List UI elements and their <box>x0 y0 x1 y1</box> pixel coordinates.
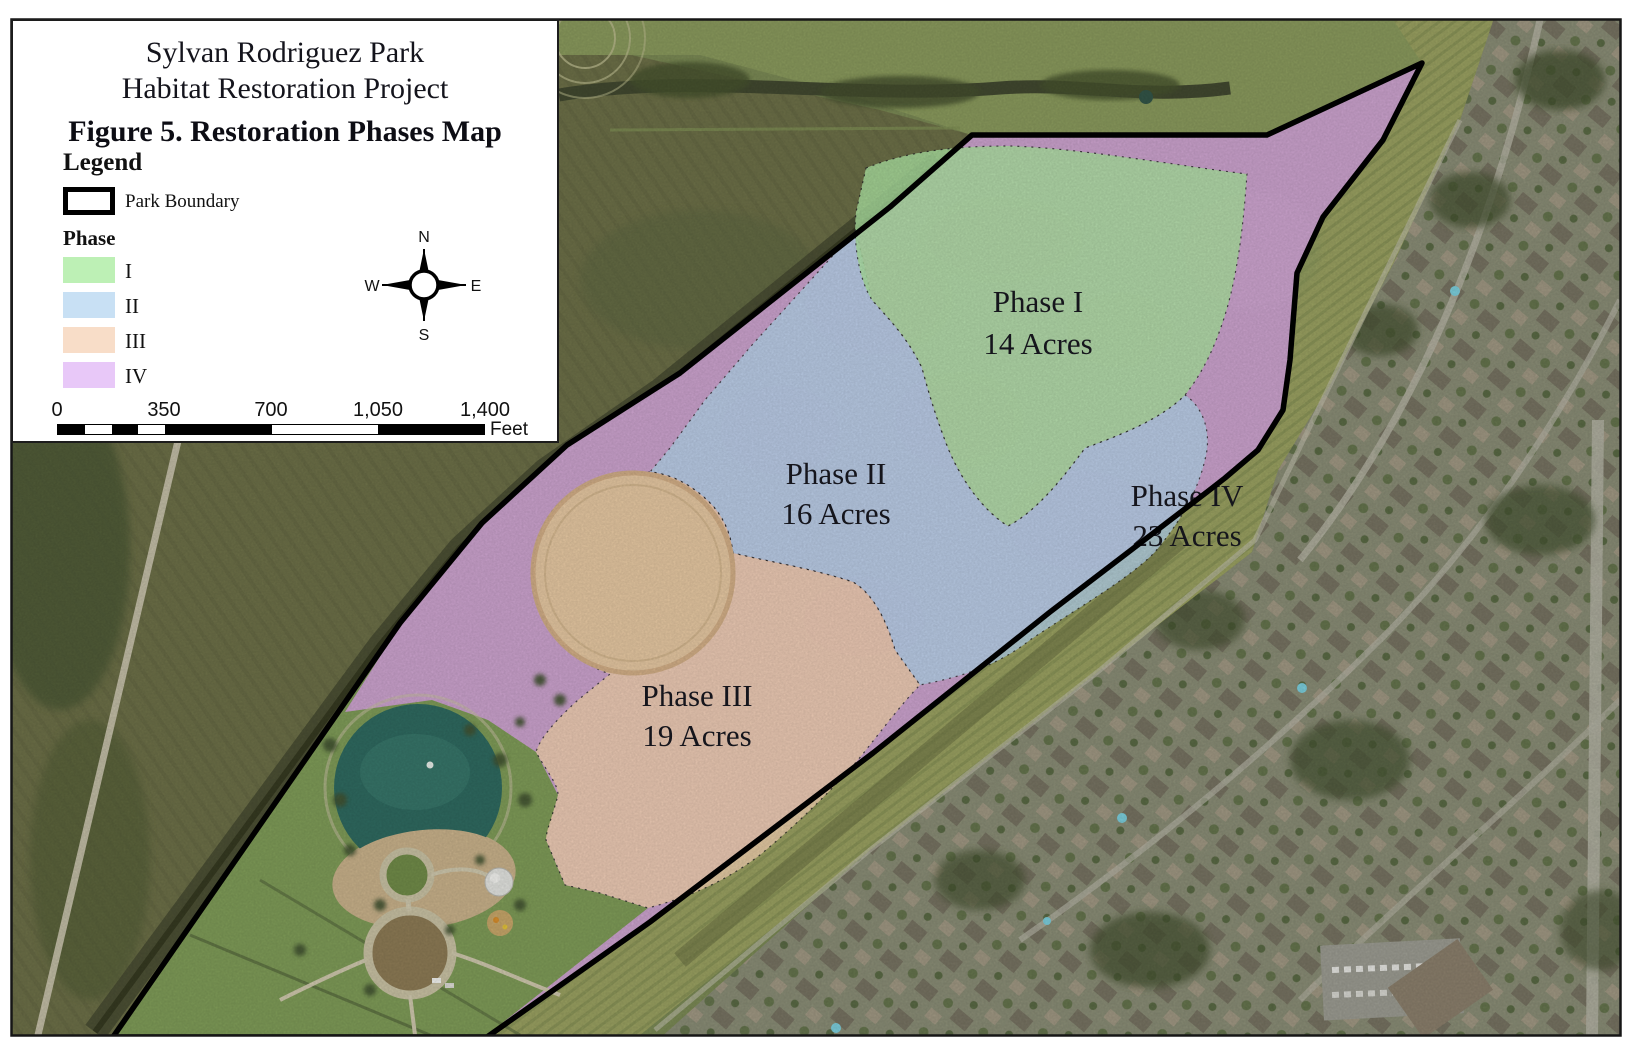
compass-rose: N S W E <box>359 224 489 346</box>
figure-title: Figure 5. Restoration Phases Map <box>13 115 557 149</box>
scale-tick-350: 350 <box>147 399 180 422</box>
phase-2-acres: 16 Acres <box>781 496 890 531</box>
phase-1-acres: 14 Acres <box>983 326 1092 361</box>
west-spike <box>382 280 410 290</box>
phase-2-label: Phase II <box>786 456 887 491</box>
phase-3-label: Phase III <box>641 678 752 713</box>
park-boundary-swatch <box>63 187 115 215</box>
legend-heading: Legend <box>63 149 142 177</box>
park-boundary-label: Park Boundary <box>125 191 240 213</box>
compass-east-label: E <box>471 278 482 295</box>
map-title-line1: Sylvan Rodriguez Park <box>13 37 557 69</box>
phase-4-numeral: IV <box>125 364 147 389</box>
phase-1-swatch <box>63 257 115 283</box>
phase-1-label: Phase I <box>993 284 1083 319</box>
phase-heading: Phase <box>63 226 116 251</box>
compass-circle <box>410 271 438 299</box>
scale-tick-0: 0 <box>51 399 62 422</box>
phase-3-swatch <box>63 327 115 353</box>
compass-west-label: W <box>364 278 380 295</box>
legend-panel: Sylvan Rodriguez Park Habitat Restoratio… <box>11 19 559 443</box>
scale-bar <box>57 424 485 435</box>
phase-3-numeral: III <box>125 329 146 354</box>
phase-1-numeral: I <box>125 259 132 284</box>
phase-3-acres: 19 Acres <box>642 718 751 753</box>
scale-tick-700: 700 <box>254 399 287 422</box>
phase-4-swatch <box>63 362 115 388</box>
restoration-phases-map-figure: Phase I 14 Acres Phase II 16 Acres Phase… <box>0 0 1632 1056</box>
phase-2-numeral: II <box>125 294 139 319</box>
east-spike <box>438 280 466 290</box>
phase-2-swatch <box>63 292 115 318</box>
compass-south-label: S <box>419 327 430 344</box>
scale-unit-label: Feet <box>490 419 528 441</box>
scale-tick-1050: 1,050 <box>353 399 403 422</box>
compass-north-label: N <box>418 229 430 246</box>
map-title-line2: Habitat Restoration Project <box>13 73 557 105</box>
